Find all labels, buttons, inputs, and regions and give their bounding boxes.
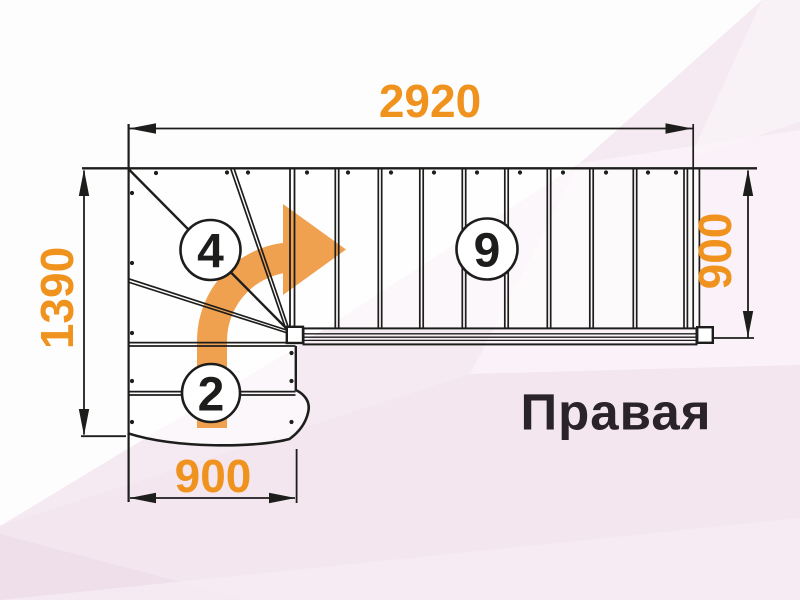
- orientation-label: Правая: [521, 384, 712, 441]
- dimension-label-right: 900: [689, 213, 741, 290]
- upper-count-label: 9: [474, 225, 501, 278]
- lower-count-label: 2: [198, 369, 225, 422]
- stair-plan-canvas: 4 9 2 2920 1390 900 900: [0, 0, 800, 600]
- newel-post-right: [697, 327, 713, 343]
- dimension-label-left: 1390: [31, 247, 83, 349]
- dimension-label-bottom: 900: [175, 450, 252, 502]
- dimension-label-top: 2920: [379, 75, 481, 127]
- stair-plan-diagram: 4 9 2 2920 1390 900 900: [0, 0, 800, 600]
- step-count-circle-lower: 2: [182, 364, 240, 422]
- winder-count-label: 4: [197, 226, 224, 279]
- newel-post-left: [287, 327, 303, 343]
- step-count-circle-upper: 9: [457, 219, 518, 280]
- step-count-circle-winder: 4: [181, 220, 241, 280]
